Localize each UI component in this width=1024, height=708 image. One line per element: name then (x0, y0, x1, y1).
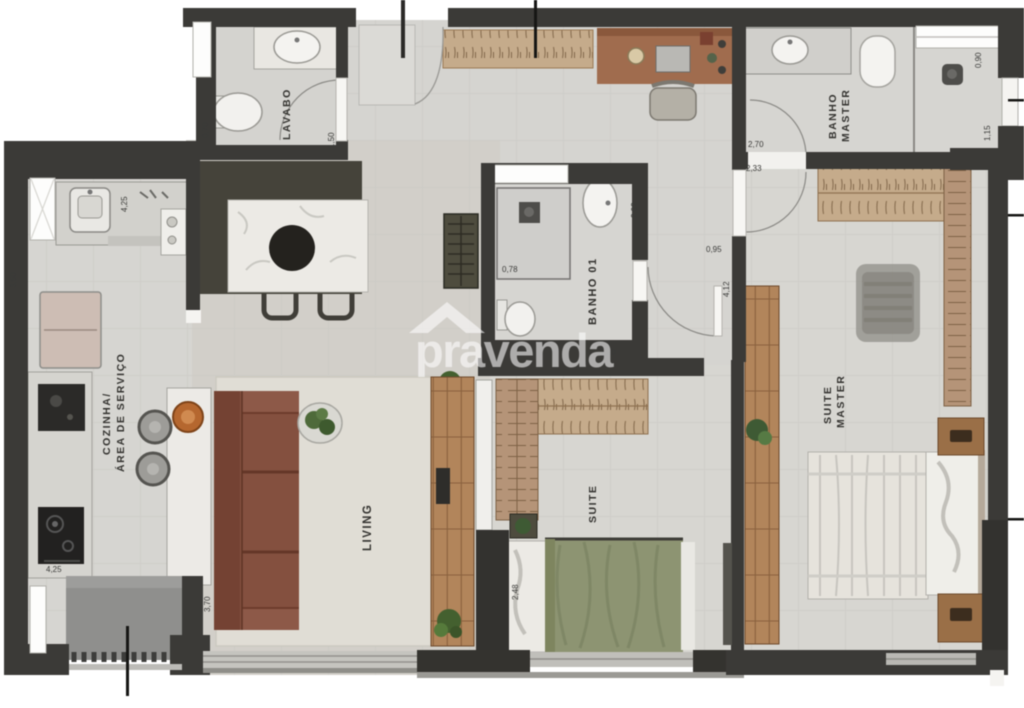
svg-text:0,78: 0,78 (502, 265, 518, 274)
svg-text:1,50: 1,50 (327, 132, 336, 148)
svg-text:3,70: 3,70 (203, 596, 212, 612)
svg-text:2,02: 2,02 (630, 202, 639, 218)
svg-text:SUITE: SUITE (822, 386, 834, 424)
svg-text:0,90: 0,90 (974, 52, 983, 68)
svg-text:4,25: 4,25 (46, 565, 62, 574)
svg-text:4,12: 4,12 (722, 281, 731, 297)
svg-text:LIVING: LIVING (362, 504, 374, 551)
svg-text:BANHO 01: BANHO 01 (587, 257, 599, 325)
svg-text:2,48: 2,48 (511, 584, 520, 600)
svg-text:MASTER: MASTER (835, 375, 847, 428)
svg-text:2,33: 2,33 (746, 164, 762, 173)
svg-text:BANHO: BANHO (827, 93, 839, 139)
svg-text:3,50: 3,50 (9, 272, 18, 288)
svg-text:0,95: 0,95 (706, 245, 722, 254)
svg-text:pravenda: pravenda (415, 324, 614, 377)
svg-text:2,70: 2,70 (748, 140, 764, 149)
svg-text:MASTER: MASTER (840, 89, 852, 142)
svg-text:ÁREA DE SERVIÇO: ÁREA DE SERVIÇO (114, 353, 127, 472)
svg-text:4,25: 4,25 (120, 196, 129, 212)
svg-text:SUITE: SUITE (587, 485, 599, 523)
svg-text:COZINHA/: COZINHA/ (101, 392, 113, 455)
svg-text:0,70: 0,70 (201, 122, 210, 138)
svg-text:1,15: 1,15 (983, 125, 992, 141)
svg-text:LAVABO: LAVABO (281, 88, 293, 140)
